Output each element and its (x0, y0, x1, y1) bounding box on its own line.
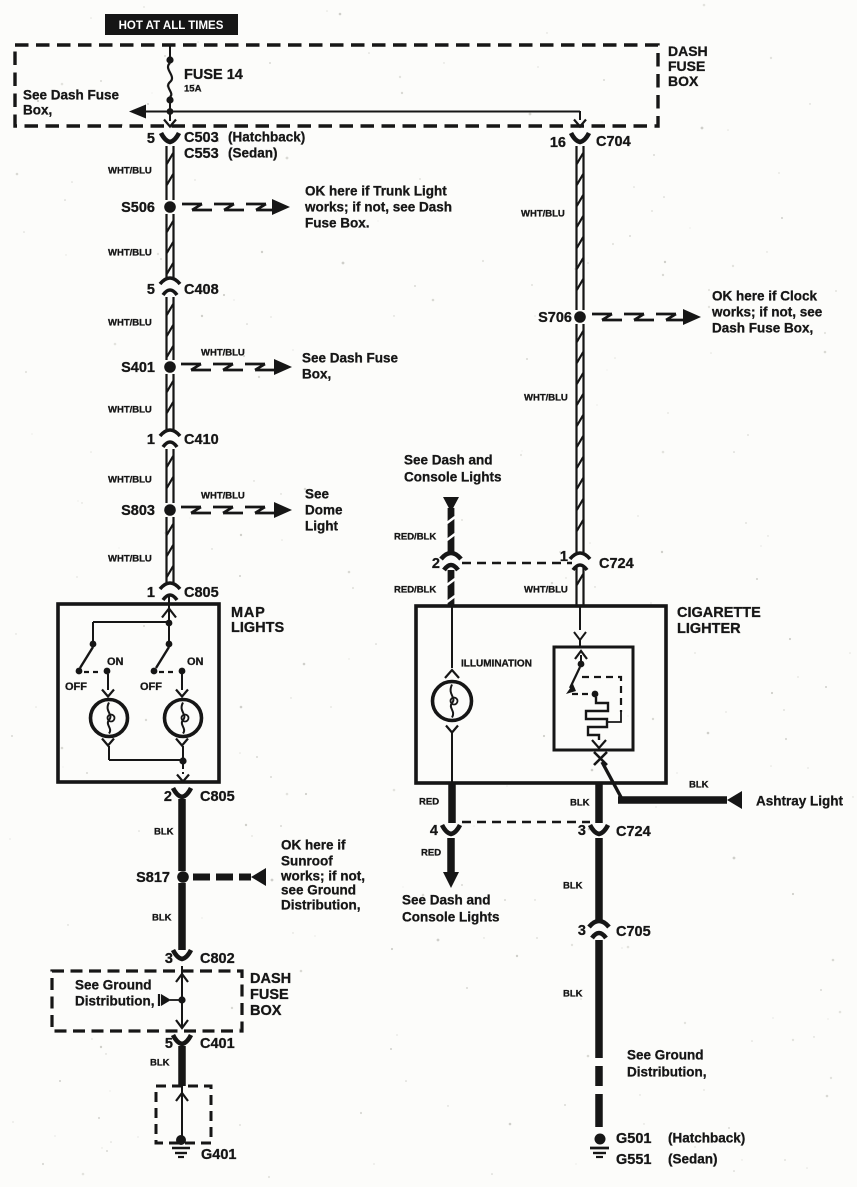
svg-text:Box,: Box, (302, 367, 331, 382)
svg-text:WHT/BLU: WHT/BLU (524, 584, 568, 595)
svg-text:See: See (305, 487, 330, 502)
svg-text:WHT/BLU: WHT/BLU (201, 490, 245, 501)
svg-text:WHT/BLU: WHT/BLU (108, 165, 152, 176)
svg-text:Sunroof: Sunroof (281, 854, 333, 869)
svg-text:works; if not, see: works; if not, see (711, 305, 823, 320)
svg-text:5: 5 (147, 282, 155, 298)
svg-text:RED/BLK: RED/BLK (394, 584, 436, 595)
svg-text:OK here if Clock: OK here if Clock (712, 289, 818, 304)
svg-text:Distribution,: Distribution, (627, 1065, 707, 1080)
svg-text:ON: ON (107, 656, 124, 668)
svg-text:3: 3 (578, 823, 586, 839)
svg-text:Distribution,: Distribution, (281, 898, 361, 913)
svg-text:see Ground: see Ground (281, 883, 356, 898)
svg-text:C704: C704 (596, 134, 631, 150)
svg-text:FUSE: FUSE (668, 58, 705, 74)
svg-text:OFF: OFF (65, 681, 87, 693)
svg-text:WHT/BLU: WHT/BLU (108, 317, 152, 328)
svg-text:See Dash and: See Dash and (404, 453, 493, 468)
svg-text:works; if not,: works; if not, (280, 869, 365, 884)
svg-text:5: 5 (165, 1036, 173, 1052)
svg-text:OFF: OFF (140, 681, 162, 693)
svg-text:BLK: BLK (570, 797, 590, 808)
svg-text:See Ground: See Ground (627, 1048, 704, 1063)
svg-text:Light: Light (305, 519, 338, 534)
svg-text:HOT AT ALL TIMES: HOT AT ALL TIMES (119, 20, 224, 32)
svg-text:C805: C805 (200, 789, 235, 805)
svg-text:C408: C408 (184, 282, 219, 298)
svg-text:BLK: BLK (152, 912, 172, 923)
svg-text:MAP: MAP (231, 605, 266, 621)
svg-text:BLK: BLK (563, 988, 583, 999)
svg-text:Console Lights: Console Lights (404, 470, 502, 485)
svg-text:WHT/BLU: WHT/BLU (108, 474, 152, 485)
svg-text:1: 1 (147, 585, 155, 601)
svg-text:15A: 15A (184, 83, 202, 94)
svg-text:C705: C705 (616, 924, 651, 940)
svg-text:OK here if: OK here if (281, 838, 346, 853)
svg-text:3: 3 (578, 923, 586, 939)
svg-text:WHT/BLU: WHT/BLU (524, 392, 568, 403)
svg-text:(Sedan): (Sedan) (668, 1152, 718, 1167)
svg-text:ON: ON (187, 656, 204, 668)
svg-text:16: 16 (550, 135, 566, 151)
svg-text:BLK: BLK (689, 779, 709, 790)
svg-text:See Dash Fuse: See Dash Fuse (302, 351, 399, 366)
svg-text:S706: S706 (538, 310, 572, 326)
svg-text:4: 4 (430, 823, 438, 839)
svg-text:OK here if Trunk Light: OK here if Trunk Light (305, 184, 447, 199)
svg-text:Ashtray Light: Ashtray Light (756, 794, 844, 809)
svg-text:Dash Fuse Box,: Dash Fuse Box, (712, 321, 813, 336)
svg-text:BLK: BLK (563, 880, 583, 891)
svg-text:Console Lights: Console Lights (402, 910, 500, 925)
svg-text:2: 2 (432, 556, 440, 572)
svg-text:3: 3 (165, 951, 173, 967)
svg-text:S401: S401 (121, 360, 155, 376)
svg-text:DASH: DASH (668, 43, 708, 59)
svg-text:WHT/BLU: WHT/BLU (521, 208, 565, 219)
svg-text:G401: G401 (201, 1147, 236, 1163)
svg-text:(Hatchback): (Hatchback) (228, 130, 305, 145)
svg-text:S817: S817 (136, 870, 170, 886)
svg-text:C503: C503 (184, 130, 219, 146)
svg-text:BOX: BOX (668, 73, 699, 89)
svg-text:CIGARETTE: CIGARETTE (677, 605, 761, 621)
svg-text:2: 2 (164, 789, 172, 805)
svg-text:WHT/BLU: WHT/BLU (201, 347, 245, 358)
svg-text:LIGHTS: LIGHTS (231, 620, 284, 636)
svg-text:C401: C401 (200, 1036, 235, 1052)
svg-text:See Ground: See Ground (75, 978, 152, 993)
svg-text:S506: S506 (121, 200, 155, 216)
svg-text:BLK: BLK (150, 1057, 170, 1068)
svg-text:C410: C410 (184, 432, 219, 448)
svg-text:Fuse Box.: Fuse Box. (305, 216, 370, 231)
svg-text:FUSE 14: FUSE 14 (184, 67, 243, 83)
svg-text:Dome: Dome (305, 503, 343, 518)
svg-text:RED: RED (421, 847, 441, 858)
svg-text:Box,: Box, (23, 103, 52, 118)
svg-text:1: 1 (560, 549, 568, 565)
svg-text:G551: G551 (616, 1152, 651, 1168)
svg-text:G501: G501 (616, 1131, 651, 1147)
svg-text:S803: S803 (121, 503, 155, 519)
svg-text:works; if not, see Dash: works; if not, see Dash (304, 200, 452, 215)
svg-text:C724: C724 (616, 824, 651, 840)
svg-text:BLK: BLK (154, 826, 174, 837)
svg-text:(Hatchback): (Hatchback) (668, 1131, 745, 1146)
svg-text:BOX: BOX (250, 1003, 282, 1019)
svg-text:LIGHTER: LIGHTER (677, 621, 741, 637)
svg-text:Distribution,: Distribution, (75, 994, 155, 1009)
svg-text:ILLUMINATION: ILLUMINATION (461, 659, 532, 670)
svg-text:See Dash and: See Dash and (402, 893, 491, 908)
svg-text:5: 5 (147, 131, 155, 147)
svg-text:DASH: DASH (250, 971, 291, 987)
svg-text:1: 1 (147, 432, 155, 448)
svg-text:RED/BLK: RED/BLK (394, 531, 436, 542)
svg-text:WHT/BLU: WHT/BLU (108, 404, 152, 415)
svg-text:WHT/BLU: WHT/BLU (108, 247, 152, 258)
svg-text:RED: RED (419, 796, 439, 807)
svg-text:(Sedan): (Sedan) (228, 146, 278, 161)
svg-text:FUSE: FUSE (250, 987, 289, 1003)
svg-text:C805: C805 (184, 585, 219, 601)
svg-text:WHT/BLU: WHT/BLU (108, 553, 152, 564)
svg-text:C802: C802 (200, 951, 235, 967)
svg-text:C724: C724 (599, 556, 634, 572)
svg-text:See Dash Fuse: See Dash Fuse (23, 88, 120, 103)
svg-text:C553: C553 (184, 146, 219, 162)
